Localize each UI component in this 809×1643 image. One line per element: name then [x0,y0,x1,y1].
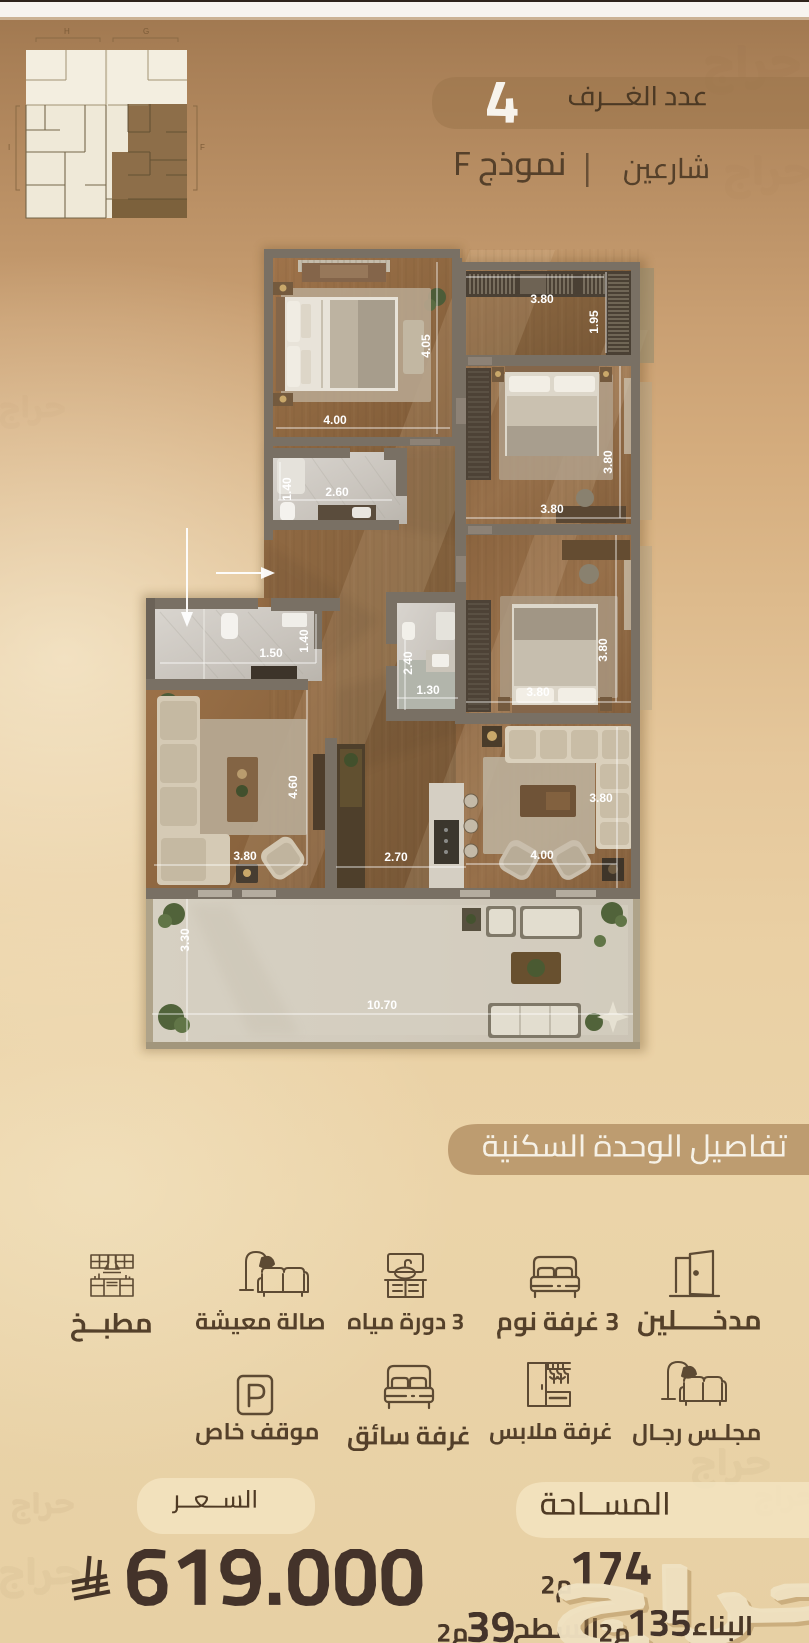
svg-text:4.00: 4.00 [530,848,554,862]
svg-text:4.00: 4.00 [323,413,347,427]
svg-text:G: G [143,27,149,36]
svg-text:1.95: 1.95 [587,310,601,334]
svg-text:3.80: 3.80 [589,791,613,805]
svg-text:2.70: 2.70 [384,850,408,864]
svg-text:3.80: 3.80 [601,450,615,474]
svg-text:4.60: 4.60 [286,775,300,799]
svg-text:10.70: 10.70 [367,998,397,1012]
svg-text:2.40: 2.40 [401,651,415,675]
svg-text:4.05: 4.05 [419,334,433,358]
svg-text:3.80: 3.80 [540,502,564,516]
svg-text:3.80: 3.80 [526,685,550,699]
svg-text:3.80: 3.80 [530,292,554,306]
svg-text:1.40: 1.40 [280,477,294,501]
svg-text:3.80: 3.80 [233,849,257,863]
svg-text:H: H [64,27,70,36]
svg-text:I: I [8,143,10,152]
svg-text:3.30: 3.30 [178,928,192,952]
svg-text:F: F [200,143,205,152]
svg-text:1.50: 1.50 [259,646,283,660]
svg-text:3.80: 3.80 [596,638,610,662]
svg-text:1.30: 1.30 [416,683,440,697]
svg-text:1.40: 1.40 [297,629,311,653]
svg-text:2.60: 2.60 [325,485,349,499]
